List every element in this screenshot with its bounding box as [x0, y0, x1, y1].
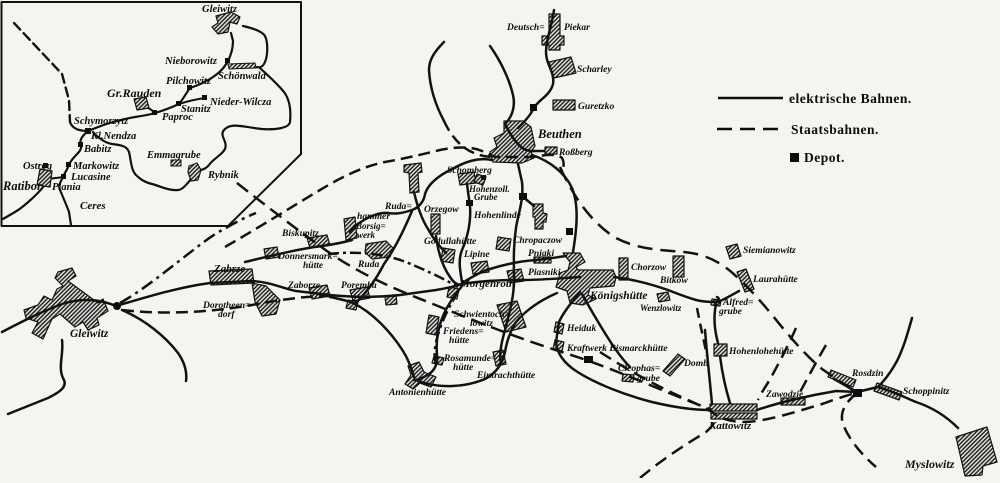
svg-text:hütte: hütte — [303, 261, 324, 271]
svg-text:Schymorzytz: Schymorzytz — [74, 116, 129, 127]
svg-text:hütte: hütte — [453, 362, 474, 373]
svg-text:Eintrachthütte: Eintrachthütte — [476, 370, 536, 381]
svg-text:Biskupitz: Biskupitz — [281, 228, 319, 239]
svg-text:Deutsch=: Deutsch= — [506, 23, 545, 33]
svg-text:Antonienhütte: Antonienhütte — [388, 387, 447, 398]
svg-text:Roßberg: Roßberg — [558, 147, 593, 158]
svg-text:Orzegow: Orzegow — [424, 204, 459, 215]
svg-text:Gleiwitz: Gleiwitz — [70, 328, 109, 340]
svg-text:Siemianowitz: Siemianowitz — [743, 245, 796, 256]
svg-text:Scharley: Scharley — [577, 64, 612, 75]
svg-text:Schomberg: Schomberg — [447, 165, 492, 176]
svg-text:Zabrze: Zabrze — [213, 263, 245, 275]
svg-text:Laurahütte: Laurahütte — [752, 274, 799, 285]
svg-text:Kl.Nendza: Kl.Nendza — [90, 131, 136, 142]
svg-text:Kattowitz: Kattowitz — [708, 420, 752, 432]
svg-text:Heiduk: Heiduk — [566, 323, 597, 334]
svg-text:Chorzow: Chorzow — [631, 262, 667, 273]
svg-text:Plania: Plania — [52, 182, 81, 193]
svg-text:Schönwald: Schönwald — [218, 71, 267, 82]
svg-text:Kraftwerk Bismarckhütte: Kraftwerk Bismarckhütte — [566, 343, 668, 354]
svg-text:Nieborowitz: Nieborowitz — [164, 56, 218, 67]
svg-text:Emmagrube: Emmagrube — [146, 150, 201, 161]
svg-text:Piekar: Piekar — [564, 23, 590, 33]
svg-text:Bitkow: Bitkow — [659, 275, 688, 286]
svg-text:Hohenlohehütte: Hohenlohehütte — [728, 346, 794, 357]
svg-text:Nieder-Wilcza: Nieder-Wilcza — [209, 97, 271, 108]
svg-text:grube: grube — [718, 306, 743, 317]
svg-text:Rybnik: Rybnik — [207, 170, 239, 181]
svg-text:Zawodzie: Zawodzie — [765, 389, 804, 400]
svg-text:Paproc: Paproc — [162, 112, 193, 123]
svg-text:Pniaki: Pniaki — [528, 248, 554, 259]
svg-text:Schoppinitz: Schoppinitz — [903, 386, 950, 397]
svg-text:Poremba: Poremba — [341, 280, 377, 291]
svg-text:Lipine: Lipine — [463, 249, 490, 260]
svg-text:Depot.: Depot. — [804, 150, 845, 165]
svg-text:elektrische Bahnen.: elektrische Bahnen. — [789, 91, 912, 106]
svg-text:Zaborze: Zaborze — [287, 280, 321, 291]
svg-text:Godullahütte: Godullahütte — [424, 236, 477, 247]
svg-text:hütte: hütte — [449, 335, 470, 346]
svg-text:Ruda: Ruda — [357, 259, 380, 270]
svg-text:Grube: Grube — [474, 192, 498, 202]
svg-text:Ratibor: Ratibor — [2, 179, 42, 193]
svg-text:Gr.Rauden: Gr.Rauden — [107, 86, 162, 100]
svg-text:werk: werk — [357, 230, 376, 240]
svg-text:Rosdzin: Rosdzin — [851, 368, 883, 379]
svg-text:Guretzko: Guretzko — [578, 101, 614, 112]
svg-text:Königshütte: Königshütte — [589, 290, 648, 302]
svg-text:Morgenroth: Morgenroth — [459, 278, 515, 290]
svg-text:Myslowitz: Myslowitz — [904, 457, 955, 471]
svg-text:Markowitz: Markowitz — [72, 161, 120, 172]
svg-text:Chropaczow: Chropaczow — [513, 235, 563, 246]
svg-text:Hohenlinde: Hohenlinde — [473, 210, 522, 221]
svg-text:Piasniki: Piasniki — [528, 267, 561, 278]
svg-text:Pilchowitz: Pilchowitz — [166, 76, 212, 87]
svg-text:Beuthen: Beuthen — [537, 127, 582, 141]
svg-text:Staatsbahnen.: Staatsbahnen. — [791, 122, 879, 137]
svg-text:Wenzlowitz: Wenzlowitz — [640, 303, 682, 313]
svg-text:Domb: Domb — [683, 358, 708, 369]
svg-text:Ceres: Ceres — [80, 200, 106, 212]
svg-text:Ostrog: Ostrog — [23, 161, 52, 172]
svg-text:dorf: dorf — [218, 309, 235, 320]
svg-text:grube: grube — [636, 373, 661, 384]
svg-text:Babitz: Babitz — [83, 144, 112, 155]
svg-text:Gleiwitz: Gleiwitz — [202, 4, 238, 15]
